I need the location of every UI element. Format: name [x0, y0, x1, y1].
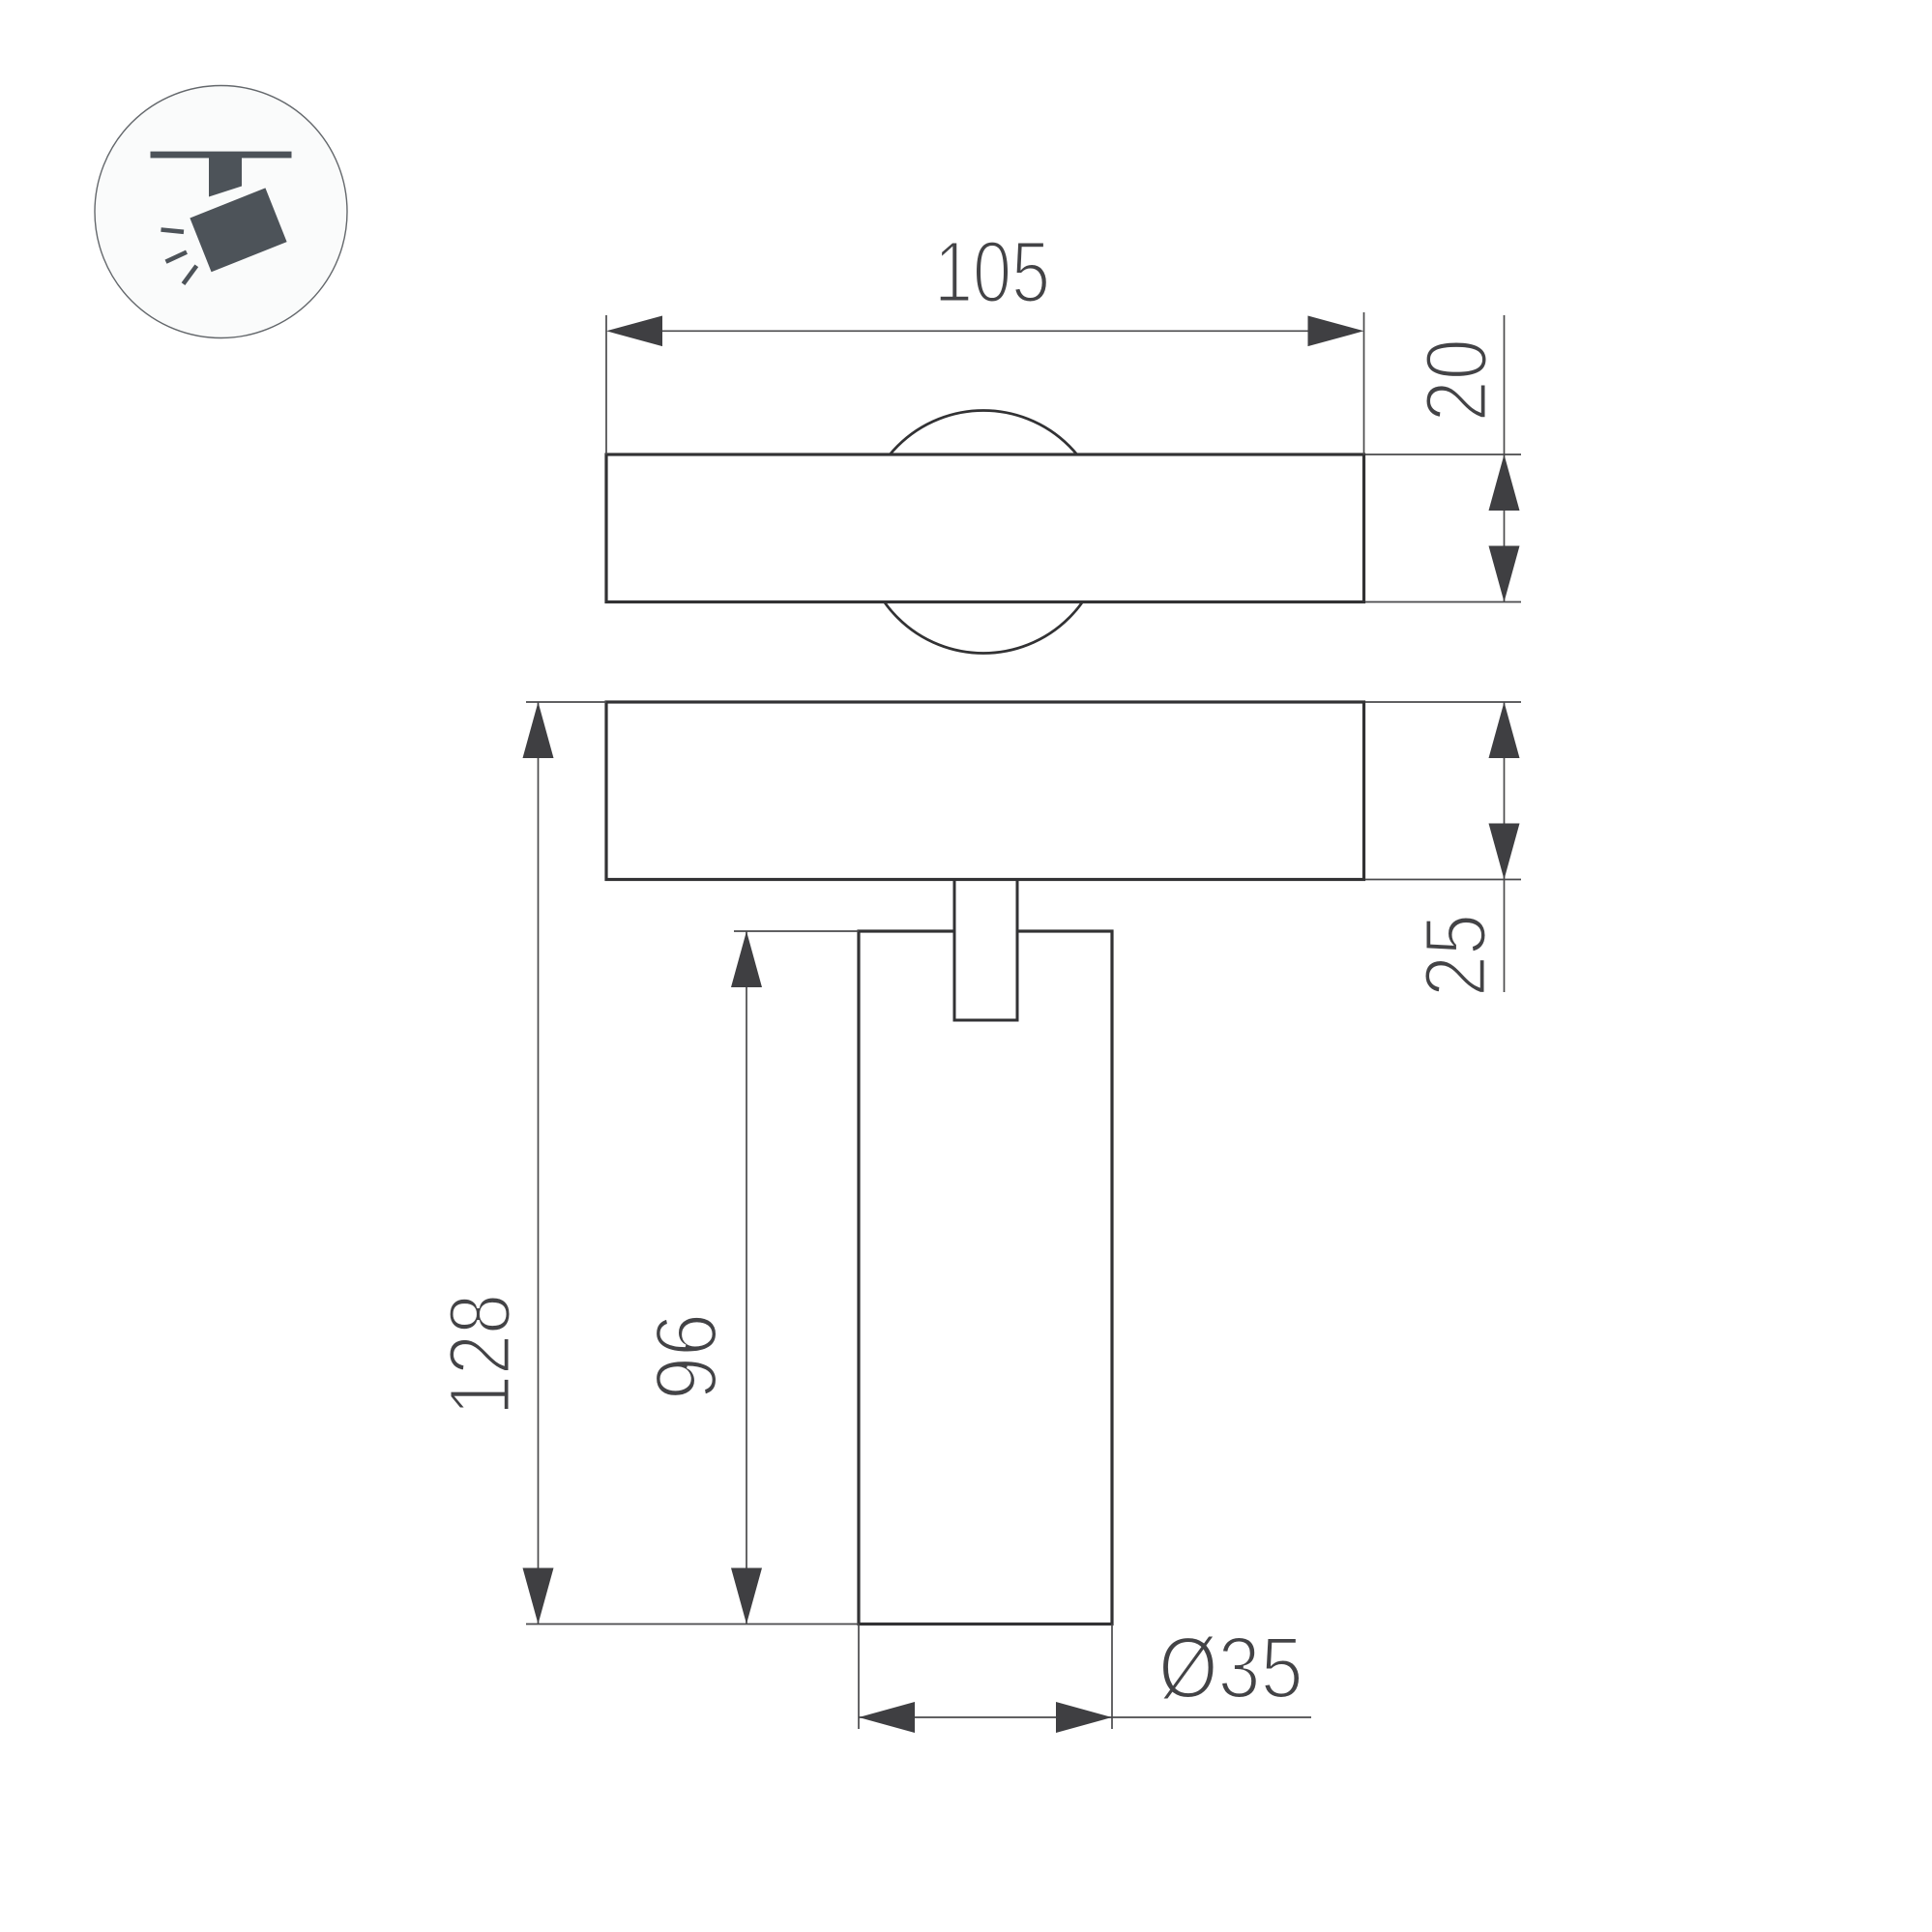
svg-text:105: 105	[934, 223, 1050, 320]
svg-text:Ø35: Ø35	[1158, 1619, 1303, 1716]
svg-text:20: 20	[1408, 338, 1506, 422]
svg-text:128: 128	[431, 1294, 529, 1416]
svg-text:96: 96	[638, 1313, 736, 1400]
svg-text:25: 25	[1407, 914, 1505, 997]
